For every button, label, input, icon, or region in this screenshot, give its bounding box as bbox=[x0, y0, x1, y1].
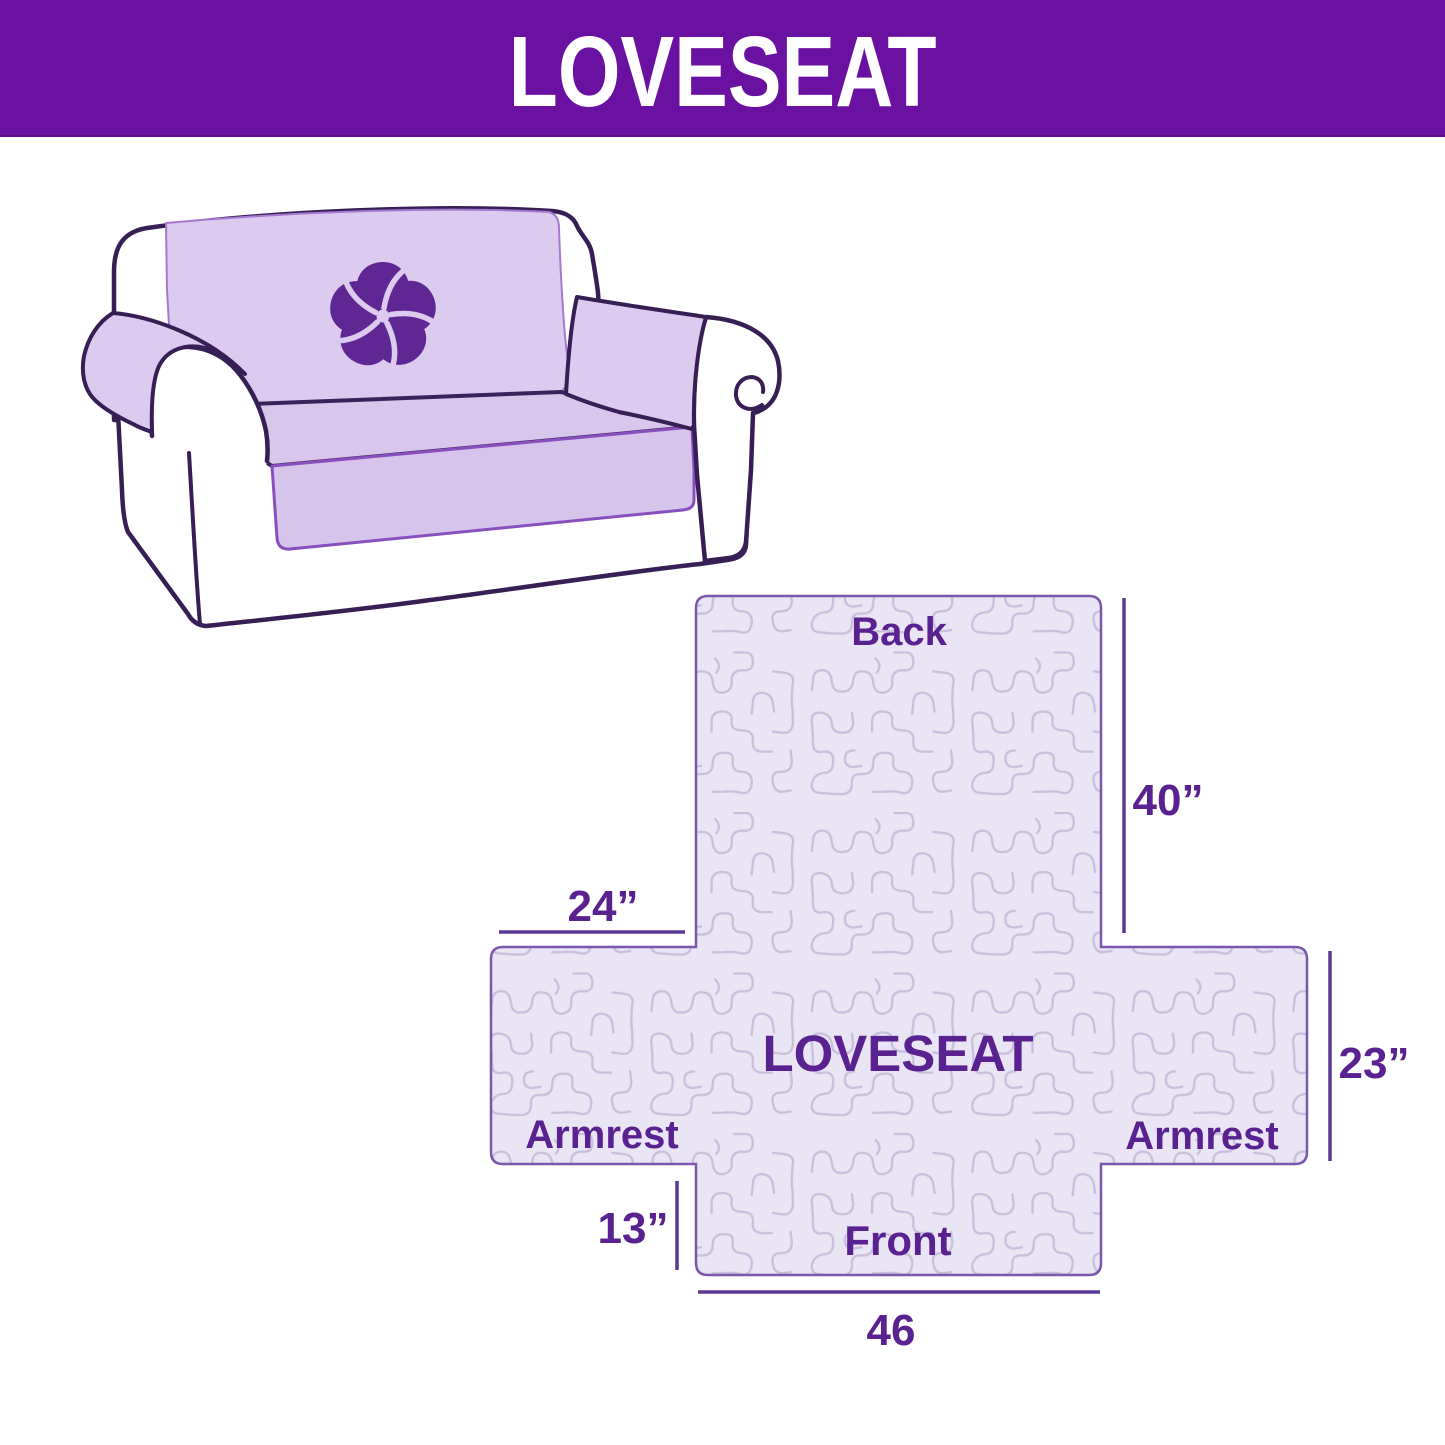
svg-text:Armrest: Armrest bbox=[1125, 1114, 1278, 1158]
svg-text:46: 46 bbox=[867, 1306, 916, 1355]
svg-text:23”: 23” bbox=[1339, 1039, 1410, 1088]
svg-text:13”: 13” bbox=[598, 1204, 669, 1253]
svg-text:24”: 24” bbox=[568, 882, 639, 931]
svg-text:Back: Back bbox=[851, 610, 947, 654]
svg-text:LOVESEAT: LOVESEAT bbox=[762, 1025, 1033, 1082]
svg-text:Armrest: Armrest bbox=[525, 1113, 678, 1157]
svg-text:Front: Front bbox=[844, 1217, 951, 1264]
svg-text:40”: 40” bbox=[1133, 776, 1204, 825]
